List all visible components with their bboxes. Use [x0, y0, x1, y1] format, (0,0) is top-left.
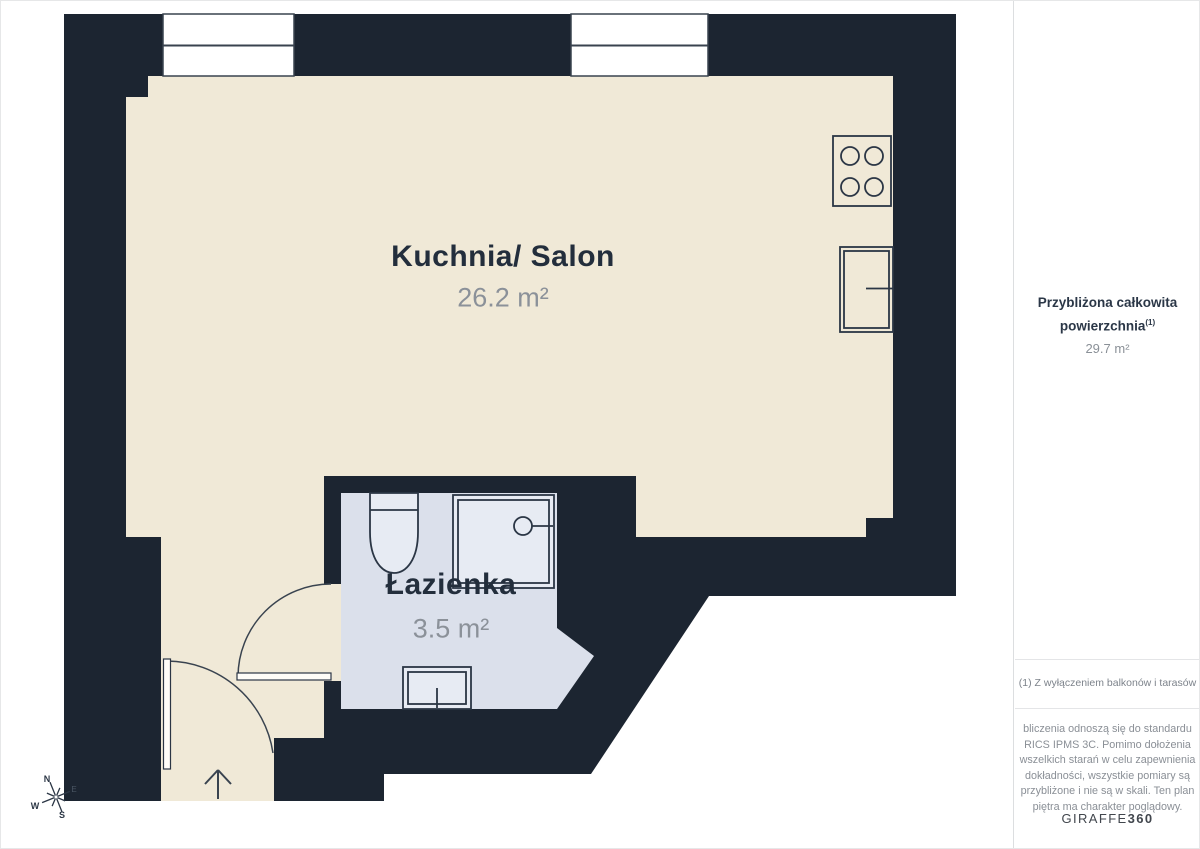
floor-plan-drawing: N E W S [1, 1, 1011, 849]
sidebar-divider [1015, 708, 1200, 709]
footnote-text: (1) Z wyłączeniem balkonów i tarasów [1014, 677, 1200, 689]
bathroom-wall-segment [324, 681, 341, 738]
compass-n-label: N [44, 774, 51, 784]
bathroom-sink-icon [403, 667, 471, 709]
compass-s-label: S [59, 810, 65, 820]
bathroom-room-label: Łazienka [386, 568, 517, 602]
floor-plan-page: N E W S Kuchnia/ Salon 26.2 m² Łazienka … [0, 0, 1200, 849]
total-area-value: 29.7 m² [1014, 341, 1200, 356]
total-area-title: Przybliżona całkowita powierzchnia(1) [1026, 293, 1190, 337]
toilet-icon [370, 493, 418, 573]
door-leaf [164, 659, 171, 769]
info-sidebar: Przybliżona całkowita powierzchnia(1) 29… [1013, 1, 1200, 849]
kitchen-room-area: 26.2 m² [457, 283, 549, 314]
footnote-ref: (1) [1145, 318, 1155, 327]
compass-e-label: E [71, 785, 76, 794]
window [571, 14, 708, 76]
sidebar-divider [1015, 659, 1200, 660]
door-leaf [237, 673, 331, 680]
compass-w-label: W [31, 801, 40, 811]
total-area-block: Przybliżona całkowita powierzchnia(1) 29… [1014, 293, 1200, 356]
bathroom-wall-segment [324, 476, 341, 584]
brand-logo: GIRAFFE360 [1014, 811, 1200, 826]
bathroom-room-area: 3.5 m² [413, 614, 490, 645]
window [163, 14, 294, 76]
disclaimer-text: bliczenia odnoszą się do standardu RICS … [1020, 722, 1196, 815]
kitchen-room-label: Kuchnia/ Salon [391, 240, 615, 274]
brand-name: GIRAFFE [1061, 811, 1127, 826]
brand-suffix: 360 [1128, 811, 1154, 826]
